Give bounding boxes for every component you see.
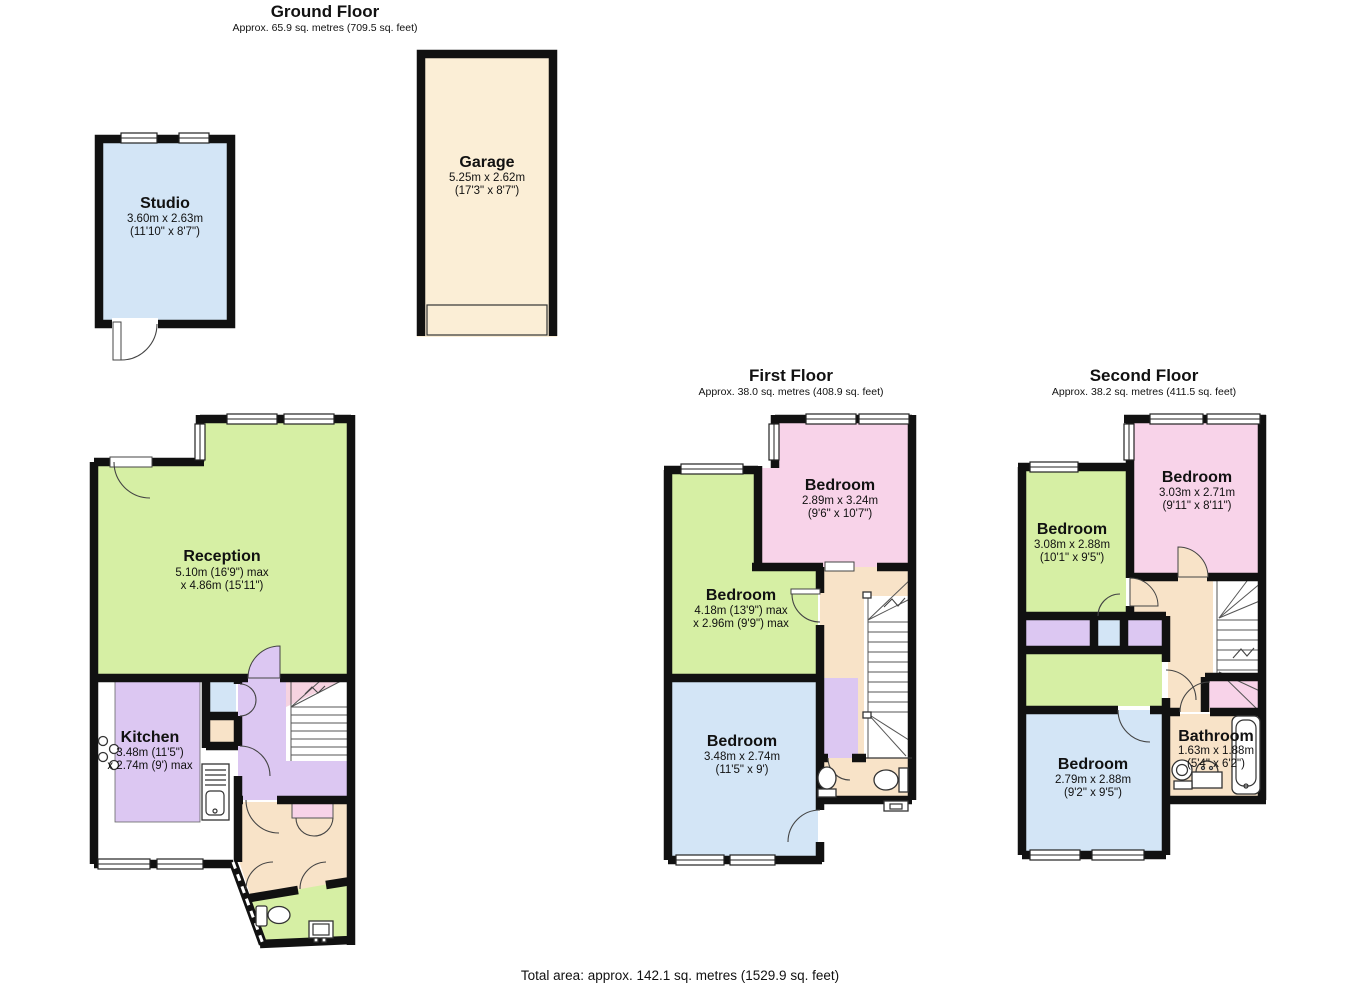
room-dims-imperial: x 4.86m (15'11") — [181, 580, 264, 592]
room-dims-imperial: (11'10" x 8'7") — [130, 226, 200, 238]
ff-sink-icon — [818, 767, 836, 797]
sf-closet-nook — [1096, 618, 1122, 648]
room-dims-metric: 2.79m x 2.88m — [1055, 774, 1131, 786]
room-dims-metric: 3.08m x 2.88m — [1034, 539, 1110, 551]
ground-closet-blue — [208, 680, 236, 714]
sf-closet-left — [1022, 618, 1090, 648]
ff-bedroom-mid-label: Bedroom 4.18m (13'9") max x 2.96m (9'9")… — [693, 587, 789, 630]
studio-door — [112, 318, 158, 360]
ff-inner-hall — [820, 678, 858, 758]
plan-second: Bedroom 3.03m x 2.71m (9'11" x 8'11") Be… — [1018, 414, 1266, 860]
room-dims-metric: 4.18m (13'9") max — [694, 605, 787, 617]
room-dims-imperial: (9'2" x 9'5") — [1064, 787, 1122, 799]
reception-label: Reception 5.10m (16'9") max x 4.86m (15'… — [175, 548, 268, 592]
room-dims-metric: 2.89m x 3.24m — [802, 495, 878, 507]
room-name: Bedroom — [1058, 756, 1128, 773]
room-dims-imperial: (9'11" x 8'11") — [1162, 500, 1231, 512]
room-dims-metric: 3.48m x 2.74m — [704, 751, 780, 763]
room-dims-imperial: (10'1" x 9'5") — [1040, 552, 1105, 564]
room-name: Bedroom — [706, 587, 776, 604]
floor-titles: Ground Floor Approx. 65.9 sq. metres (70… — [232, 2, 1236, 398]
kitchen-sink-icon — [202, 764, 229, 820]
sf-pink-closet — [1207, 679, 1258, 708]
room-dims-metric: 3.48m (11'5") — [116, 747, 184, 759]
room-name: Bedroom — [1162, 469, 1232, 486]
second-floor-title: Second Floor — [1090, 366, 1199, 385]
sf-green-strip — [1022, 652, 1162, 706]
hall-closet — [292, 802, 333, 818]
room-dims-imperial: (5'4" x 6'2") — [1187, 758, 1245, 770]
room-dims-metric: 3.03m x 2.71m — [1159, 487, 1235, 499]
room-name: Bedroom — [707, 733, 777, 750]
room-dims-metric: 1.63m x 1.88m — [1178, 745, 1254, 757]
floorplan-canvas: Ground Floor Approx. 65.9 sq. metres (70… — [0, 0, 1360, 989]
ground-closet-cream — [208, 718, 236, 744]
ff-bedroom-top-door — [825, 562, 854, 571]
plan-studio: Studio 3.60m x 2.63m (11'10" x 8'7") — [99, 133, 231, 360]
second-floor-subtitle: Approx. 38.2 sq. metres (411.5 sq. feet) — [1052, 386, 1236, 398]
ff-bedroom-top-label: Bedroom 2.89m x 3.24m (9'6" x 10'7") — [802, 477, 878, 520]
room-dims-imperial: x 2.96m (9'9") max — [693, 618, 789, 630]
floorplan-page: Ground Floor Approx. 65.9 sq. metres (70… — [0, 0, 1360, 989]
sf-bedroom-left-label: Bedroom 3.08m x 2.88m (10'1" x 9'5") — [1034, 521, 1110, 564]
room-dims-imperial: (9'6" x 10'7") — [808, 508, 873, 520]
plan-garage: Garage 5.25m x 2.62m (17'3" x 8'7") — [417, 50, 557, 337]
sf-closet-right — [1128, 618, 1164, 648]
room-name: Bedroom — [1037, 521, 1107, 538]
plan-first: Bedroom 2.89m x 3.24m (9'6" x 10'7") Bed… — [664, 414, 912, 865]
room-dims-imperial: (17'3" x 8'7") — [455, 185, 520, 197]
room-name: Kitchen — [121, 729, 180, 746]
room-name: Reception — [183, 548, 260, 565]
ground-floor-subtitle: Approx. 65.9 sq. metres (709.5 sq. feet) — [232, 22, 417, 34]
room-dims-imperial: x 2.74m (9') max — [107, 760, 193, 772]
sf-bedroom-top-label: Bedroom 3.03m x 2.71m (9'11" x 8'11") — [1159, 469, 1235, 512]
sf-bathroom-label: Bathroom 1.63m x 1.88m (5'4" x 6'2") — [1178, 728, 1254, 770]
garage-label: Garage 5.25m x 2.62m (17'3" x 8'7") — [449, 154, 525, 197]
first-floor-title: First Floor — [749, 366, 833, 385]
ground-floor-title: Ground Floor — [271, 2, 380, 21]
ff-stairs-floor — [864, 596, 912, 758]
sf-bedroom-bottom-label: Bedroom 2.79m x 2.88m (9'2" x 9'5") — [1055, 756, 1131, 799]
room-name: Garage — [459, 154, 514, 171]
entry-door — [110, 457, 152, 467]
room-dims-metric: 5.10m (16'9") max — [175, 567, 268, 579]
room-dims-metric: 5.25m x 2.62m — [449, 172, 525, 184]
plan-ground: Reception 5.10m (16'9") max x 4.86m (15'… — [94, 414, 351, 946]
first-floor-subtitle: Approx. 38.0 sq. metres (408.9 sq. feet) — [698, 386, 883, 398]
room-dims-metric: 3.60m x 2.63m — [127, 213, 203, 225]
room-name: Studio — [140, 195, 190, 212]
room-name: Bathroom — [1178, 728, 1254, 745]
total-area-text: Total area: approx. 142.1 sq. metres (15… — [521, 968, 839, 983]
room-name: Bedroom — [805, 477, 875, 494]
room-dims-imperial: (11'5" x 9') — [715, 764, 768, 776]
